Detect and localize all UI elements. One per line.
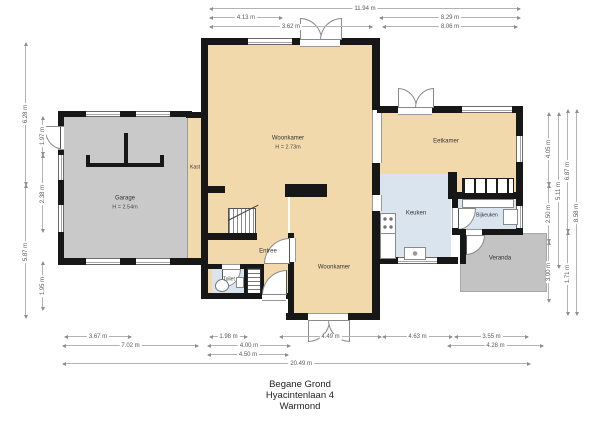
wall [448, 192, 523, 199]
window [248, 38, 292, 45]
bijkeuken-counter [462, 199, 514, 208]
dimension-line: 4.00 m [208, 345, 290, 346]
room-label-veranda: Veranda [489, 255, 511, 264]
room-label-toilet: Toilet [223, 276, 235, 284]
dimension-line: 5.11 m [558, 113, 559, 268]
wall [372, 38, 380, 320]
room-label-keuken: Keuken [406, 210, 426, 219]
appliance [503, 209, 518, 225]
room-label-kast: Kast [190, 164, 200, 172]
dimension-line: 2.50 m [548, 185, 549, 242]
dimension-line: 3.62 m [210, 26, 372, 27]
dimension-line: 1.98 m [210, 336, 247, 337]
dimension-line: 3.67 m [65, 336, 131, 337]
chimney [285, 184, 327, 197]
window [58, 205, 64, 232]
garage-partition [86, 163, 164, 167]
dimension-line: 1.71 m [567, 232, 568, 315]
stove-counter [380, 213, 396, 235]
dimension-line: 4.05 m [548, 113, 549, 185]
window [58, 155, 64, 180]
garage-partition [86, 155, 90, 167]
window [86, 258, 120, 265]
dimension-line: 20.49 m [63, 363, 530, 364]
door-arc [415, 88, 434, 108]
floor-plan: Woonkamer H = 2.73m Garage H = 2.54m Eet… [0, 0, 600, 424]
window [516, 136, 523, 162]
window [462, 106, 512, 113]
dimension-line: 6.87 m [567, 110, 568, 232]
door-opening [372, 195, 382, 211]
dimension-line: 5.87 m [25, 185, 26, 318]
wall [201, 38, 208, 299]
window [136, 111, 170, 117]
dimension-line: 4.49 m [280, 336, 381, 337]
window [86, 111, 120, 117]
garage-partition [160, 155, 164, 167]
plan-title: Begane Grond Hyacintenlaan 4 Warmond [0, 379, 600, 412]
room-label-entree: Entree [259, 248, 277, 257]
wall [58, 258, 192, 265]
wall [460, 233, 466, 264]
title-floor: Begane Grond [0, 379, 600, 390]
dimension-line: 1.95 m [42, 262, 43, 310]
sink [404, 247, 426, 260]
dimension-line: 3.00 m [548, 242, 549, 302]
wall-opening [372, 110, 382, 163]
room-kast [188, 118, 201, 258]
dimension-line: 4.13 m [210, 17, 282, 18]
room-woonkamer-bottom [290, 192, 374, 314]
door-arc [44, 126, 61, 149]
room-label-eetkamer: Eetkamer [433, 138, 459, 147]
wall [187, 118, 188, 258]
dimension-line: 11.94 m [210, 8, 520, 9]
dimension-line: 8.06 m [383, 26, 517, 27]
dimension-line: 7.02 m [63, 345, 198, 346]
wall [207, 233, 257, 240]
room-label-woonkamer-top: Woonkamer H = 2.73m [272, 134, 304, 151]
wall [58, 111, 192, 117]
room-woonkamer-top [208, 44, 372, 192]
garage-partition [124, 133, 128, 167]
room-label-garage: Garage H = 2.54m [112, 194, 138, 211]
wall [207, 186, 225, 193]
dimension-line: 8.58 m [576, 110, 577, 315]
dimension-line: 3.55 m [455, 336, 528, 337]
room-label-woonkamer-bottom: Woonkamer [318, 264, 350, 273]
door-arc [300, 18, 322, 40]
room-label-bijkeuken: Bijkeuken [476, 212, 498, 220]
dimension-line: 4.28 m [448, 345, 543, 346]
door-arc [320, 18, 342, 40]
wall [448, 172, 457, 199]
dimension-line: 8.29 m [380, 17, 520, 18]
window [136, 258, 170, 265]
hand-basin [236, 277, 244, 288]
title-street: Hyacintenlaan 4 [0, 390, 600, 401]
kitchen-counter [380, 233, 396, 259]
radiator [462, 178, 514, 193]
dimension-line: 1.97 m [42, 117, 43, 155]
dimension-line: 2.38 m [42, 155, 43, 232]
staircase [228, 208, 256, 235]
dimension-line: 4.63 m [383, 336, 452, 337]
dimension-line: 4.50 m [208, 354, 288, 355]
title-city: Warmond [0, 401, 600, 412]
dimension-line: 6.28 m [25, 43, 26, 185]
